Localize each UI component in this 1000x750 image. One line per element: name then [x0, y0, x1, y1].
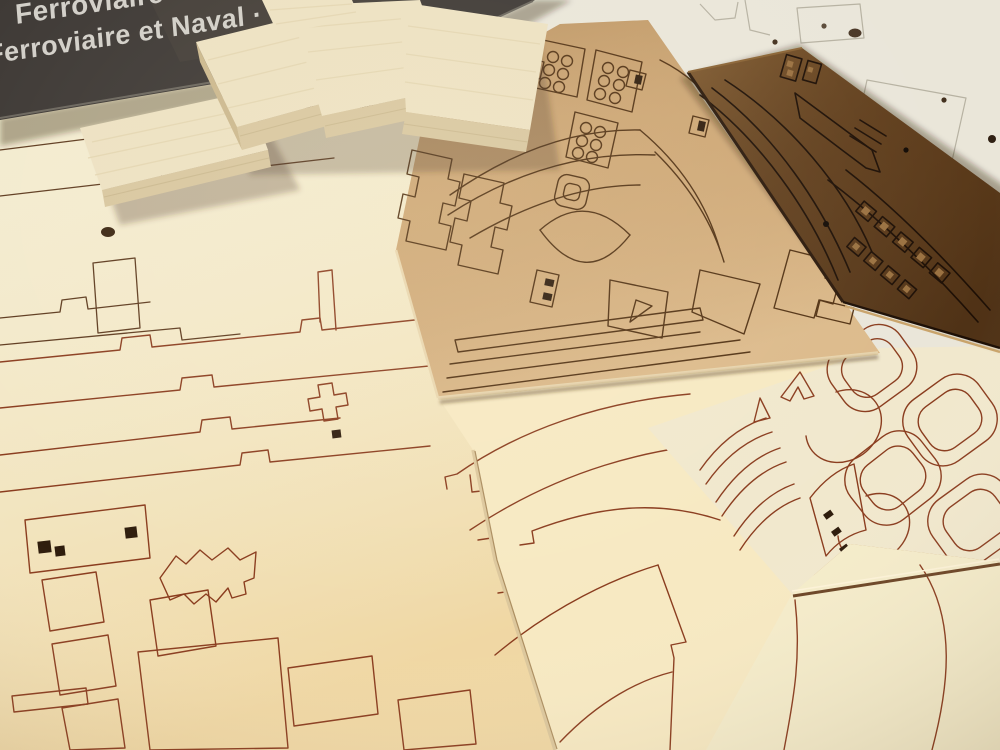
photo-canvas: Ferroviaire Ferroviaire et Naval · Mo	[0, 0, 1000, 750]
photo-vignette	[0, 0, 1000, 750]
photo-model-kit-parts: Ferroviaire Ferroviaire et Naval · Mo	[0, 0, 1000, 750]
